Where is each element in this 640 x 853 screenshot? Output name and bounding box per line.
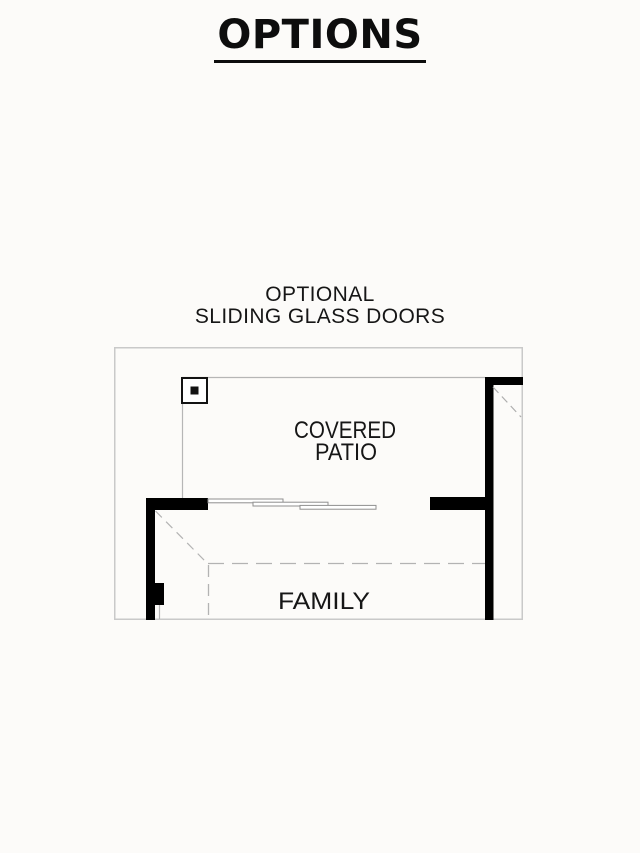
wall-door-jamb-right xyxy=(430,497,485,510)
wall-door-jamb-left xyxy=(146,498,208,510)
page-title-row: OPTIONS xyxy=(0,12,640,63)
wall-left-jog xyxy=(155,583,164,605)
room-label-family: FAMILY xyxy=(278,588,370,615)
wall-right-vertical xyxy=(485,377,494,620)
room-label-covered-patio-line2: PATIO xyxy=(315,439,377,466)
patio-post-core xyxy=(191,387,199,395)
option-caption: OPTIONAL SLIDING GLASS DOORS xyxy=(0,284,640,328)
floorplan-drawing: COVERED PATIO FAMILY xyxy=(114,347,523,620)
option-caption-line2: SLIDING GLASS DOORS xyxy=(0,306,640,328)
ceiling-diagonal-dashed-right xyxy=(493,387,521,417)
sliding-door-panel-3 xyxy=(300,505,376,509)
plan-border xyxy=(115,348,523,620)
patio-post-icon xyxy=(182,378,207,403)
floorplan-svg: COVERED PATIO FAMILY xyxy=(114,347,523,620)
wall-left-vertical xyxy=(146,498,155,620)
page-title: OPTIONS xyxy=(214,12,425,63)
option-caption-line1: OPTIONAL xyxy=(0,284,640,306)
sliding-glass-doors-icon xyxy=(208,499,376,509)
ceiling-diagonal-dashed-left xyxy=(156,511,209,564)
options-page: OPTIONS OPTIONAL SLIDING GLASS DOORS xyxy=(0,0,640,853)
